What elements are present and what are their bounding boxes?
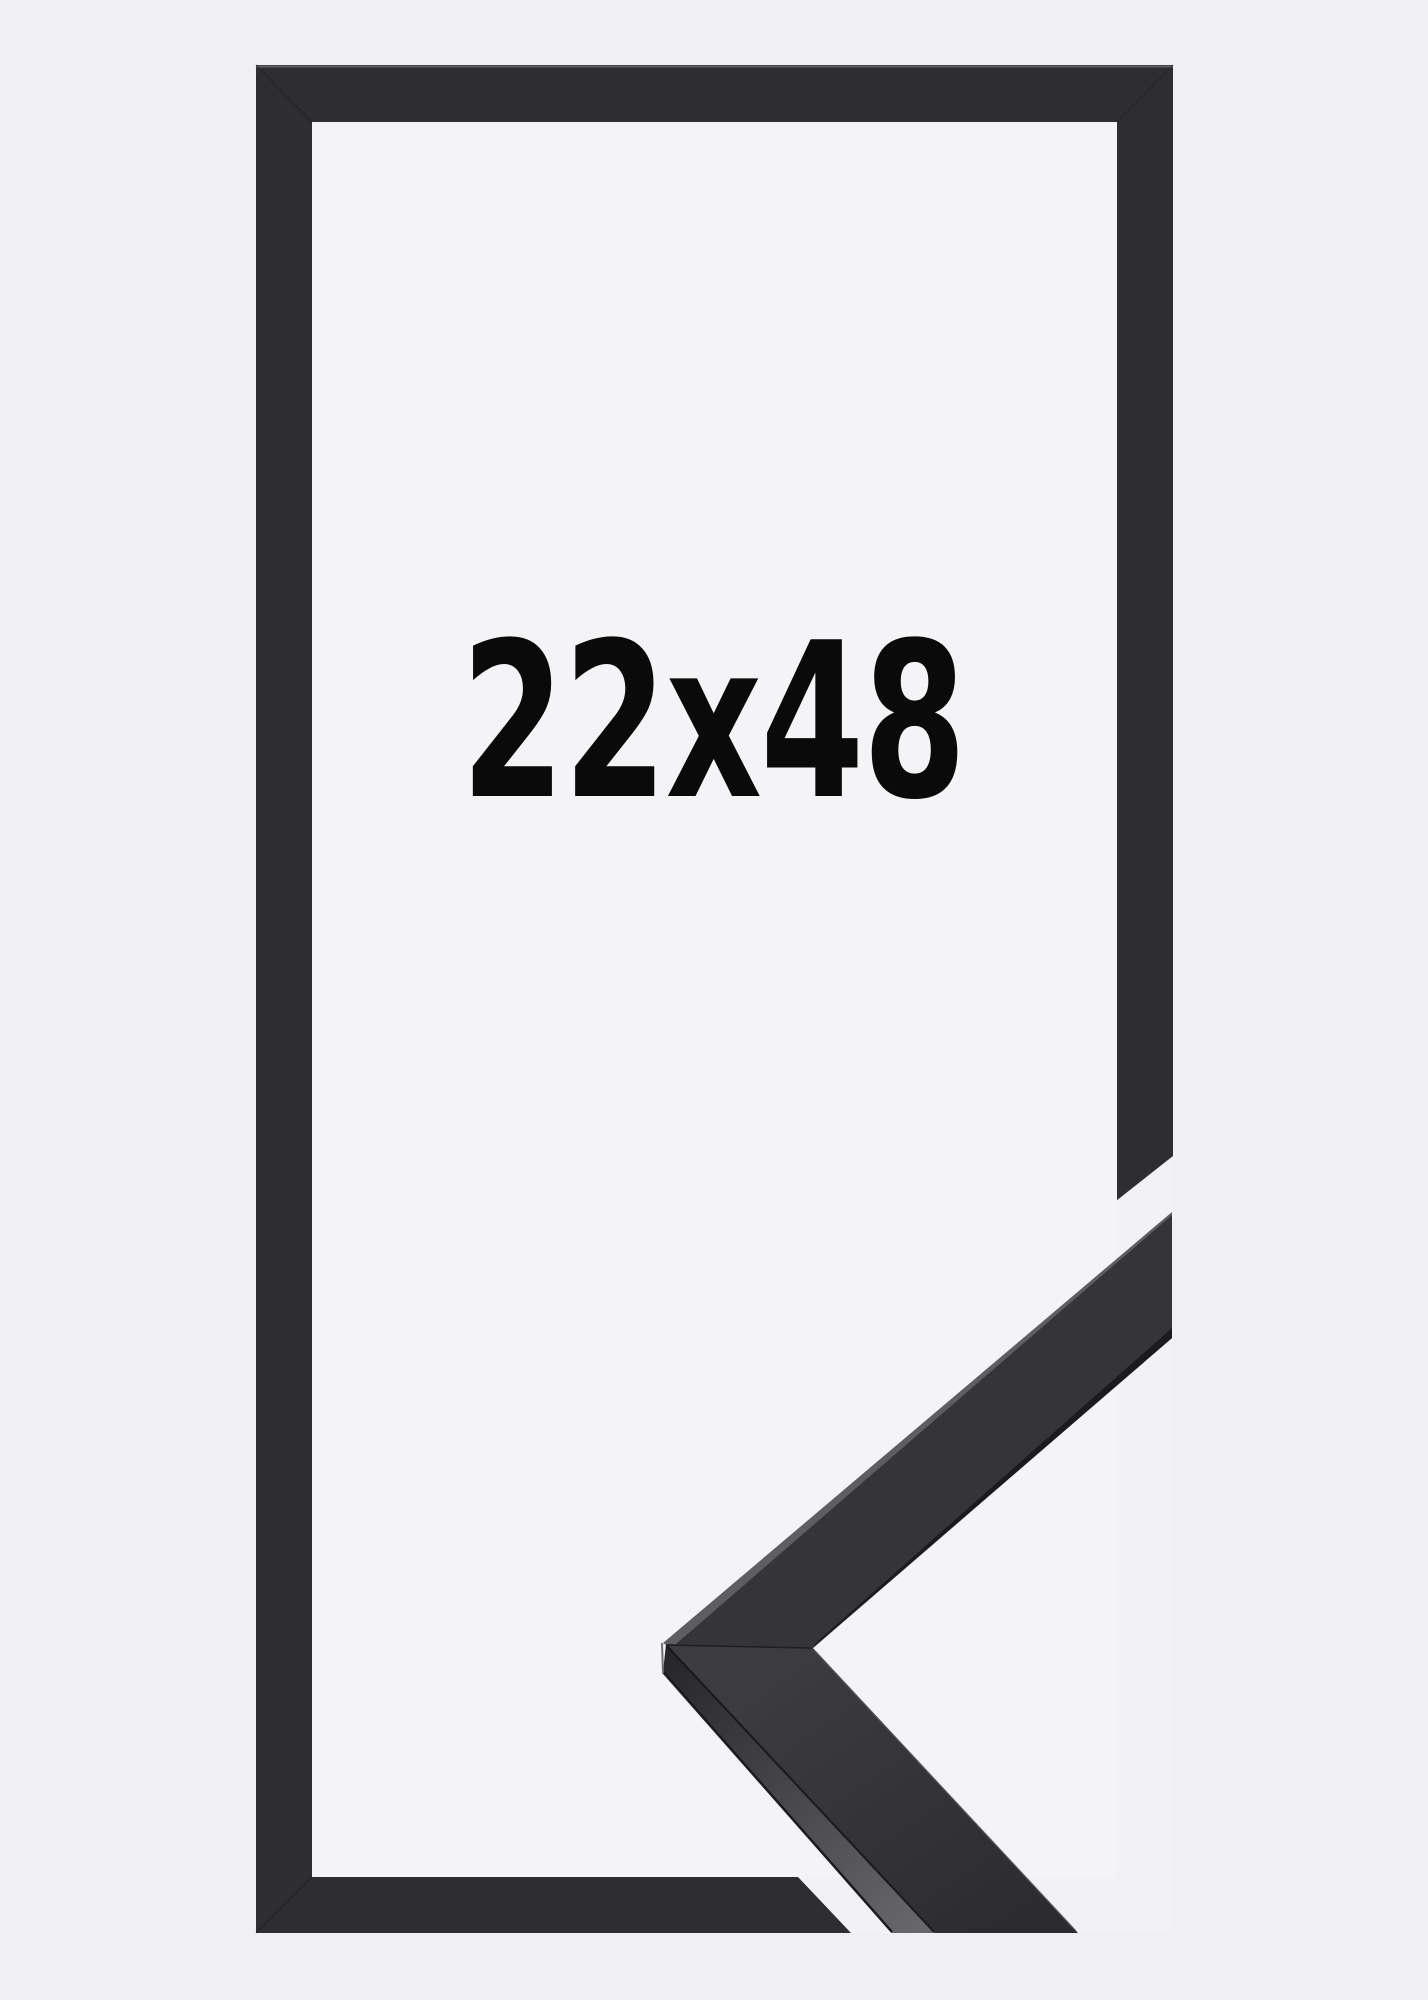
size-label: 22x48 [461,596,965,847]
moulding-tip-edge [662,1643,663,1673]
frame-size-product-image: 22x48 [0,0,1428,2000]
frame-size-illustration: 22x48 [0,0,1428,2000]
